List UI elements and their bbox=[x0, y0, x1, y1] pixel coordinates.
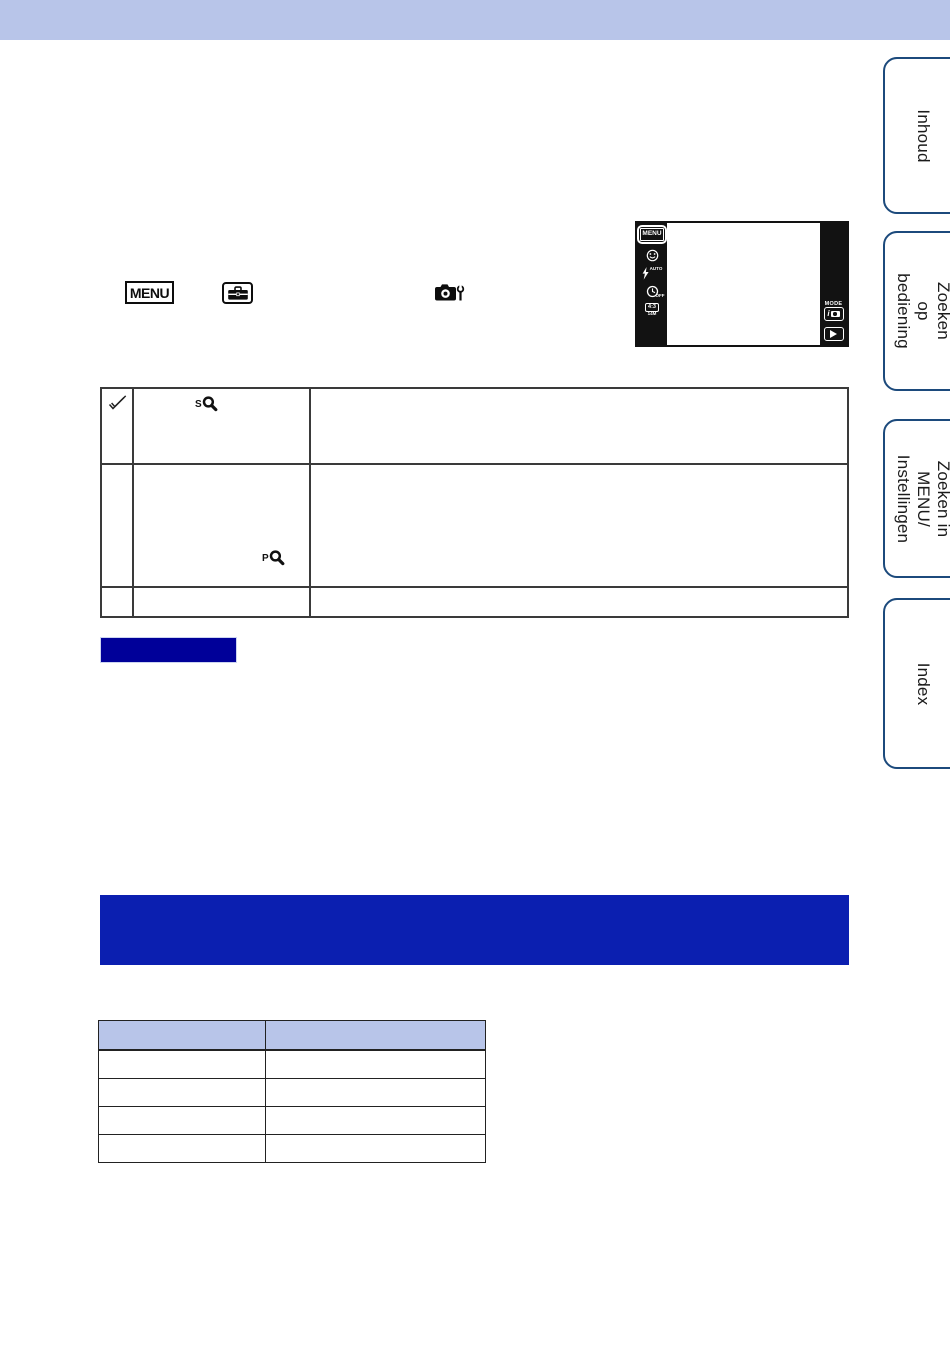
default-mark-cell bbox=[102, 465, 134, 586]
table-header-cell bbox=[266, 1021, 486, 1051]
intelligent-auto-icon: i bbox=[824, 307, 844, 321]
precision-zoom-icon: P bbox=[262, 550, 286, 567]
sidebar-tab-label: Zoeken op bediening bbox=[893, 273, 950, 349]
image-size-label: 14M bbox=[648, 312, 657, 317]
table-row bbox=[99, 1135, 486, 1163]
sidebar-tab-zoeken-op-bediening[interactable]: Zoeken op bediening bbox=[883, 231, 950, 391]
table-header-cell bbox=[99, 1021, 266, 1051]
camera-screen-left-strip: MENU AUTO O bbox=[637, 223, 667, 345]
sidebar-tab-inhoud[interactable]: Inhoud bbox=[883, 57, 950, 214]
menu-badge: MENU bbox=[125, 281, 174, 304]
camera-menu-button: MENU bbox=[640, 228, 663, 241]
camera-screen-right-strip: MODE i bbox=[820, 223, 847, 345]
playback-button-icon bbox=[824, 327, 844, 341]
option-cell bbox=[134, 588, 311, 616]
option-cell: S bbox=[134, 389, 311, 463]
flash-auto-label: AUTO bbox=[650, 267, 663, 272]
zoom-settings-table: S P bbox=[100, 387, 849, 618]
camera-glyph-icon bbox=[831, 311, 840, 317]
table-cell bbox=[266, 1050, 486, 1079]
table-cell bbox=[99, 1107, 266, 1135]
description-cell bbox=[311, 389, 847, 463]
notes-heading-label bbox=[100, 637, 237, 663]
table-row: P bbox=[102, 465, 847, 588]
table-header-row bbox=[99, 1021, 486, 1051]
sidebar-tab-zoeken-in-menu-instellingen[interactable]: Zoeken in MENU/ Instellingen bbox=[883, 419, 950, 578]
table-cell bbox=[99, 1079, 266, 1107]
table-cell bbox=[266, 1107, 486, 1135]
description-cell bbox=[311, 588, 847, 616]
table-row bbox=[99, 1107, 486, 1135]
self-timer-off-label: OFF bbox=[656, 294, 665, 299]
bottom-data-table bbox=[98, 1020, 486, 1163]
smart-zoom-prefix: S bbox=[195, 400, 202, 413]
sidebar-tab-label: Index bbox=[913, 662, 933, 705]
image-size-icon: 4:3 14M bbox=[645, 303, 659, 317]
description-cell bbox=[311, 465, 847, 586]
settings-toolbox-icon bbox=[222, 282, 253, 304]
sidebar-tab-index[interactable]: Index bbox=[883, 598, 950, 769]
table-cell bbox=[99, 1135, 266, 1163]
self-timer-off-icon: OFF bbox=[646, 285, 659, 298]
table-cell bbox=[266, 1079, 486, 1107]
camera-screen-illustration: MENU AUTO O bbox=[635, 221, 849, 347]
section-heading-banner bbox=[100, 895, 849, 965]
page-top-bar bbox=[0, 0, 950, 40]
shooting-settings-icon bbox=[434, 281, 466, 305]
menu-button-highlight: MENU bbox=[637, 225, 666, 244]
default-check-icon bbox=[108, 395, 127, 416]
table-cell bbox=[99, 1050, 266, 1079]
default-mark-cell bbox=[102, 389, 134, 463]
flash-auto-icon: AUTO bbox=[642, 267, 663, 280]
intelligent-auto-i-label: i bbox=[827, 310, 829, 318]
table-row bbox=[99, 1050, 486, 1079]
play-triangle-icon bbox=[830, 330, 837, 338]
table-row bbox=[99, 1079, 486, 1107]
table-row bbox=[102, 588, 847, 616]
table-row: S bbox=[102, 389, 847, 465]
option-cell: P bbox=[134, 465, 311, 586]
precision-zoom-prefix: P bbox=[262, 554, 269, 567]
default-mark-cell bbox=[102, 588, 134, 616]
smile-shutter-icon bbox=[646, 249, 659, 262]
table-cell bbox=[266, 1135, 486, 1163]
smart-zoom-icon: S bbox=[195, 396, 219, 413]
sidebar-tab-label: Zoeken in MENU/ Instellingen bbox=[893, 454, 950, 542]
sidebar-tab-label: Inhoud bbox=[913, 109, 933, 162]
manual-page: Inhoud Zoeken op bediening Zoeken in MEN… bbox=[0, 0, 950, 1363]
shooting-mode-icon: MODE i bbox=[824, 302, 844, 322]
